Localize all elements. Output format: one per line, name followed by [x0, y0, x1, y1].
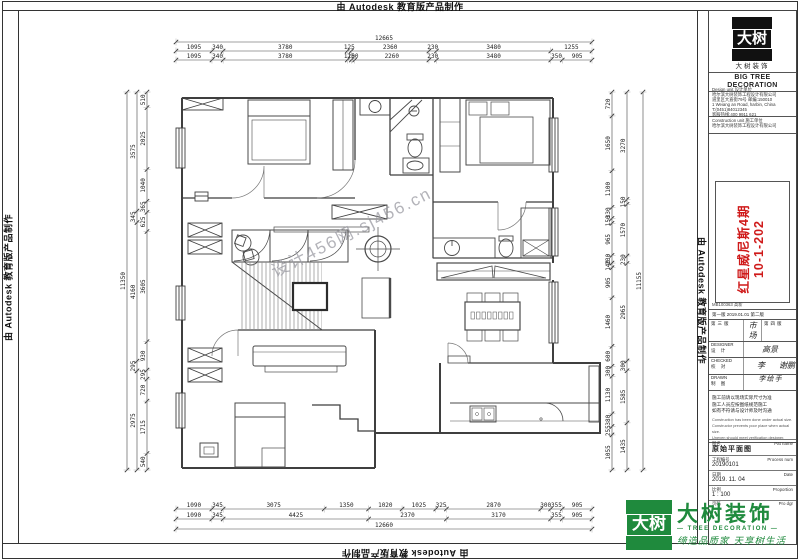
kitchen [448, 356, 600, 422]
signature-designer: 高景 [744, 342, 796, 357]
svg-text:3075: 3075 [266, 502, 281, 509]
footer-logo: 大树 大树装饰 — TREE DECORATION — 缔造品质家 天享树生活 [626, 494, 798, 556]
svg-text:100: 100 [348, 53, 359, 60]
svg-text:3605: 3605 [140, 279, 147, 294]
footer-slogan: 缔造品质家 天享树生活 [677, 533, 786, 547]
svg-text:905: 905 [572, 512, 583, 519]
project-name-box: 红星威尼斯4期 10-1-202 [715, 181, 790, 303]
interior-walls [182, 98, 553, 431]
svg-text:4160: 4160 [130, 284, 137, 299]
svg-text:1435: 1435 [620, 439, 627, 454]
svg-text:2975: 2975 [130, 413, 137, 428]
sofa [253, 346, 346, 372]
svg-text:720: 720 [140, 384, 147, 395]
svg-text:1570: 1570 [620, 223, 627, 238]
place-settings [471, 312, 513, 319]
revision-row: 第一版 2019.01.01 第二版 [709, 309, 796, 318]
svg-text:1255: 1255 [564, 44, 579, 51]
svg-text:1090: 1090 [187, 502, 202, 509]
bedroom1-furniture [248, 100, 353, 170]
svg-text:1130: 1130 [605, 387, 612, 402]
signature-market: 市场 [744, 320, 761, 341]
brand-name-cn: 大树装饰 [709, 63, 796, 70]
signature-drawn: 手绘李 [744, 375, 796, 390]
svg-text:350: 350 [551, 53, 562, 60]
svg-text:355: 355 [551, 512, 562, 519]
svg-text:2965: 2965 [620, 305, 627, 320]
drawing-title: 原始平面图 [709, 446, 796, 455]
footer-brand: 大树装饰 [677, 504, 786, 525]
svg-text:2360: 2360 [383, 44, 398, 51]
bedroom2-furniture [440, 98, 550, 172]
bathroom2-fixtures [433, 208, 551, 258]
svg-text:905: 905 [572, 53, 583, 60]
design-unit-block: Design unit 设计单位 哈尔滨大树装饰工程设计有限公司 道里区大直街7… [709, 87, 796, 117]
svg-text:340: 340 [212, 53, 223, 60]
floor-plan-canvas: 1095340378012510022602303480350905109534… [0, 0, 800, 560]
svg-text:2870: 2870 [486, 502, 501, 509]
svg-text:125: 125 [344, 44, 355, 51]
svg-text:295: 295 [140, 369, 147, 380]
svg-text:540: 540 [140, 456, 147, 467]
svg-text:3780: 3780 [278, 44, 293, 51]
svg-text:1040: 1040 [140, 178, 147, 193]
svg-text:11155: 11155 [636, 272, 643, 290]
svg-text:600: 600 [605, 350, 612, 361]
svg-text:2025: 2025 [140, 131, 147, 146]
project-number: 10-1-202 [752, 193, 767, 305]
signature-checked: 李 [744, 358, 778, 374]
svg-text:11350: 11350 [120, 272, 127, 290]
drawn-row: DRAWN 制 图 手绘李 [709, 374, 796, 391]
svg-text:365: 365 [140, 201, 147, 212]
project-code: 20190101 [709, 462, 796, 470]
svg-text:255: 255 [605, 425, 612, 436]
svg-text:510: 510 [140, 94, 147, 105]
construction-unit-block: Construction unit 施工单位 哈尔滨大树装饰工程设计有限公司 [709, 118, 796, 134]
svg-text:2260: 2260 [385, 53, 400, 60]
svg-text:1095: 1095 [187, 44, 202, 51]
svg-text:905: 905 [572, 502, 583, 509]
svg-text:1095: 1095 [187, 53, 202, 60]
title-block: 大树 大树装饰 BIG TREE DECORATION Design unit … [708, 10, 797, 545]
company-seal-black: 大树 [732, 17, 772, 61]
design-unit-hotline: 客服热线:400 9911 621 [712, 113, 793, 118]
svg-text:3575: 3575 [130, 144, 137, 159]
svg-text:345: 345 [212, 502, 223, 509]
tv-set [293, 283, 327, 310]
svg-text:930: 930 [140, 350, 147, 361]
svg-text:3270: 3270 [620, 138, 627, 153]
svg-text:300: 300 [620, 360, 627, 371]
svg-text:340: 340 [212, 44, 223, 51]
svg-text:965: 965 [605, 234, 612, 245]
svg-text:3480: 3480 [486, 44, 501, 51]
designer-row: DESIGNER 设 计 高景 [709, 341, 796, 357]
drawing-sheet: 由 Autodesk 教育版产品制作 由 Autodesk 教育版产品制作 由 … [0, 0, 800, 560]
svg-text:1100: 1100 [605, 181, 612, 196]
drawing-date: 2019. 11. 04 [709, 477, 796, 485]
checked-row: CHECKED 校 对 李 谢鹏 [709, 357, 796, 374]
shaft-box [362, 278, 390, 318]
svg-text:345: 345 [130, 211, 137, 222]
svg-text:1090: 1090 [187, 512, 202, 519]
bay-window [437, 263, 550, 280]
svg-text:1350: 1350 [339, 502, 354, 509]
top-cabinet-fan [360, 98, 390, 115]
signature-checked-2: 谢鹏 [778, 358, 796, 374]
project-name: 红星威尼斯4期 10-1-202 [737, 193, 767, 305]
svg-text:3170: 3170 [491, 512, 506, 519]
svg-text:12660: 12660 [375, 522, 393, 529]
bathroom1-fixtures [390, 100, 429, 173]
svg-text:1055: 1055 [605, 445, 612, 460]
svg-text:1020: 1020 [378, 502, 393, 509]
archive-code-row: MB100363 高新 [709, 302, 796, 309]
svg-text:1650: 1650 [605, 136, 612, 151]
svg-text:1025: 1025 [412, 502, 427, 509]
svg-text:12665: 12665 [375, 35, 393, 42]
svg-text:3480: 3480 [486, 53, 501, 60]
dining-set [465, 293, 520, 341]
construction-unit-company: 哈尔滨大树装饰工程设计有限公司 [712, 124, 793, 129]
bedroom3-furniture [200, 403, 285, 467]
seal-characters: 大树 [732, 29, 772, 49]
svg-text:720: 720 [605, 98, 612, 109]
svg-text:4425: 4425 [289, 512, 304, 519]
construction-notes-cn: 施工前请以现场实际尺寸为准 施工人员应按图纸规范施工 如有不符请与设计师及时沟通 [709, 393, 796, 417]
svg-text:625: 625 [140, 216, 147, 227]
svg-text:3780: 3780 [278, 53, 293, 60]
footer-brand-en: — TREE DECORATION — [677, 526, 786, 532]
svg-text:2370: 2370 [400, 512, 415, 519]
svg-text:1585: 1585 [620, 389, 627, 404]
svg-text:345: 345 [212, 512, 223, 519]
svg-text:355: 355 [551, 502, 562, 509]
svg-text:300: 300 [540, 502, 551, 509]
svg-text:325: 325 [436, 502, 447, 509]
svg-text:300: 300 [605, 365, 612, 376]
svg-text:1460: 1460 [605, 314, 612, 329]
svg-text:1715: 1715 [140, 420, 147, 435]
svg-text:905: 905 [605, 277, 612, 288]
footer-seal-green: 大树 [626, 500, 672, 550]
svg-text:380: 380 [605, 414, 612, 425]
svg-text:295: 295 [130, 360, 137, 371]
revision-row-2: 第三版 市场 第四版 [709, 319, 796, 341]
